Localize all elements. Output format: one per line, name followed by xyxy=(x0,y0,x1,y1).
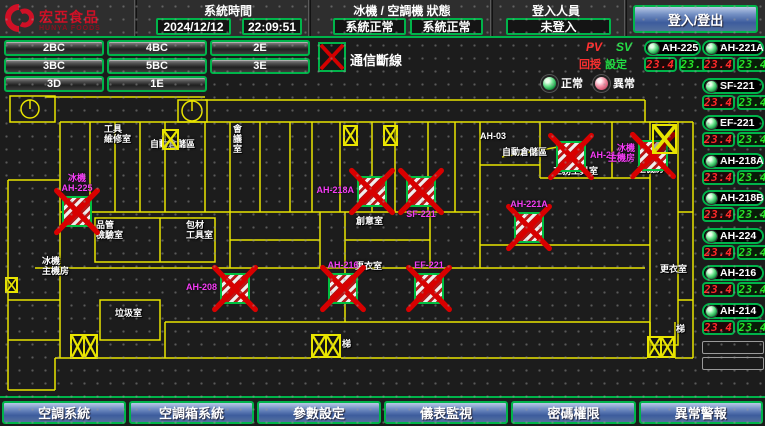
status-led-normal xyxy=(706,81,717,92)
device-values: 23.423.4 xyxy=(702,57,764,72)
device-ah-214[interactable]: AH-214 xyxy=(702,303,764,319)
device-ef-221[interactable]: EF-221 xyxy=(702,115,764,131)
device-name-text: AH-221A xyxy=(720,42,764,54)
sv-value: 23.4 xyxy=(737,170,765,185)
empty-slot xyxy=(702,341,764,354)
status-led-normal xyxy=(706,118,717,129)
sv-value: 23.4 xyxy=(737,95,765,110)
status-led-normal xyxy=(706,43,717,54)
device-name-text: AH-224 xyxy=(720,230,756,242)
sv-value: 23.4 xyxy=(737,245,765,260)
empty-slot xyxy=(702,357,764,370)
device-values: 23.423.4 xyxy=(702,245,764,260)
footer-button-3[interactable]: 參數設定 xyxy=(257,401,381,424)
device-name-text: AH-216 xyxy=(720,267,756,279)
pv-value: 23.4 xyxy=(702,132,735,147)
sv-value: 23.4 xyxy=(737,207,765,222)
device-ah-225[interactable]: AH-225 xyxy=(644,40,701,56)
status-led-normal xyxy=(648,43,659,54)
device-name-text: AH-214 xyxy=(720,305,756,317)
status-led-normal xyxy=(706,193,717,204)
footer-button-4[interactable]: 儀表監視 xyxy=(384,401,508,424)
device-sf-221[interactable]: SF-221 xyxy=(702,78,764,94)
device-ah-224[interactable]: AH-224 xyxy=(702,228,764,244)
sv-value: 23.4 xyxy=(737,282,765,297)
status-led-normal xyxy=(706,231,717,242)
pv-value: 23.4 xyxy=(644,57,677,72)
pv-value: 23.4 xyxy=(702,320,735,335)
pv-value: 23.4 xyxy=(702,245,735,260)
device-name-text: SF-221 xyxy=(720,80,754,92)
footer-button-1[interactable]: 空調系統 xyxy=(2,401,126,424)
device-values: 23.423.4 xyxy=(702,95,764,110)
sv-value: 23.4 xyxy=(737,57,765,72)
device-panel: AH-22523.423.4AH-221A23.423.4SF-22123.42… xyxy=(0,0,765,426)
device-name-text: AH-218B xyxy=(720,192,764,204)
device-ah-221a[interactable]: AH-221A xyxy=(702,40,764,56)
device-values: 23.423.4 xyxy=(644,57,701,72)
status-led-normal xyxy=(706,306,717,317)
footer-button-5[interactable]: 密碼權限 xyxy=(511,401,635,424)
footer-button-2[interactable]: 空調箱系統 xyxy=(129,401,253,424)
status-led-normal xyxy=(706,268,717,279)
device-ah-218b[interactable]: AH-218B xyxy=(702,190,764,206)
device-name-text: EF-221 xyxy=(720,117,754,129)
device-values: 23.423.4 xyxy=(702,132,764,147)
pv-value: 23.4 xyxy=(702,57,735,72)
device-values: 23.423.4 xyxy=(702,207,764,222)
status-led-normal xyxy=(706,156,717,167)
sv-value: 23.4 xyxy=(737,132,765,147)
device-values: 23.423.4 xyxy=(702,320,764,335)
device-name-text: AH-225 xyxy=(662,42,698,54)
pv-value: 23.4 xyxy=(702,282,735,297)
device-values: 23.423.4 xyxy=(702,170,764,185)
pv-value: 23.4 xyxy=(702,95,735,110)
pv-value: 23.4 xyxy=(702,207,735,222)
device-values: 23.423.4 xyxy=(702,282,764,297)
footer-nav: 空調系統空調箱系統參數設定儀表監視密碼權限異常警報 xyxy=(0,396,765,426)
device-ah-216[interactable]: AH-216 xyxy=(702,265,764,281)
footer-button-6[interactable]: 異常警報 xyxy=(639,401,763,424)
device-ah-218a[interactable]: AH-218A xyxy=(702,153,764,169)
hmi-screen: 宏亞食品 HUNYA FOODS 系統時間 2024/12/12 22:09:5… xyxy=(0,0,765,426)
device-name-text: AH-218A xyxy=(720,155,764,167)
sv-value: 23.4 xyxy=(737,320,765,335)
pv-value: 23.4 xyxy=(702,170,735,185)
